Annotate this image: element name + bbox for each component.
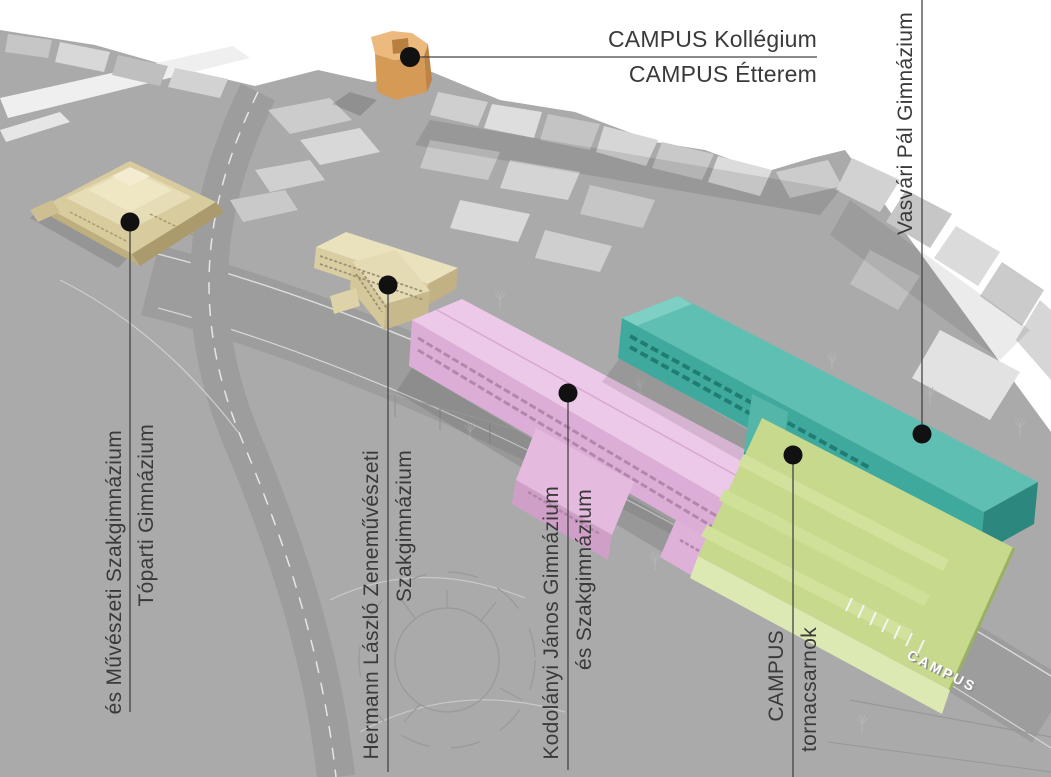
dot-kollegium [400, 47, 420, 67]
label-hermann-line2: Szakgimnázium [392, 450, 417, 602]
label-toparti-line1: Tóparti Gimnázium [134, 424, 159, 606]
label-tornacsarnok-line2: tornacsarnok [797, 627, 822, 752]
dot-hermann [379, 276, 398, 295]
dot-toparti [121, 213, 140, 232]
label-kodolanyi-line2: és Szakgimnázium [572, 489, 597, 670]
label-hermann-line1: Hermann László Zeneművészeti [359, 450, 384, 760]
label-toparti-line2: és Művészeti Szakgimnázium [102, 430, 127, 714]
label-kodolanyi-line1: Kodolányi János Gimnázium [539, 486, 564, 760]
dot-tornacsarnok [784, 446, 803, 465]
label-kollegium-line2: CAMPUS Étterem [629, 61, 817, 89]
dot-vasvari [913, 425, 932, 444]
dot-kodolanyi [559, 384, 578, 403]
label-vasvari: Vasvári Pál Gimnázium [893, 12, 918, 235]
label-tornacsarnok-line1: CAMPUS [764, 630, 789, 722]
label-kollegium-line1: CAMPUS Kollégium [608, 26, 817, 54]
label-kollegium-etterem: CAMPUS Kollégium CAMPUS Étterem [608, 26, 817, 88]
site-diagram: CAMPUS CAMPUS CAMPUS Kollégium CAMPUS Ét… [0, 0, 1051, 777]
